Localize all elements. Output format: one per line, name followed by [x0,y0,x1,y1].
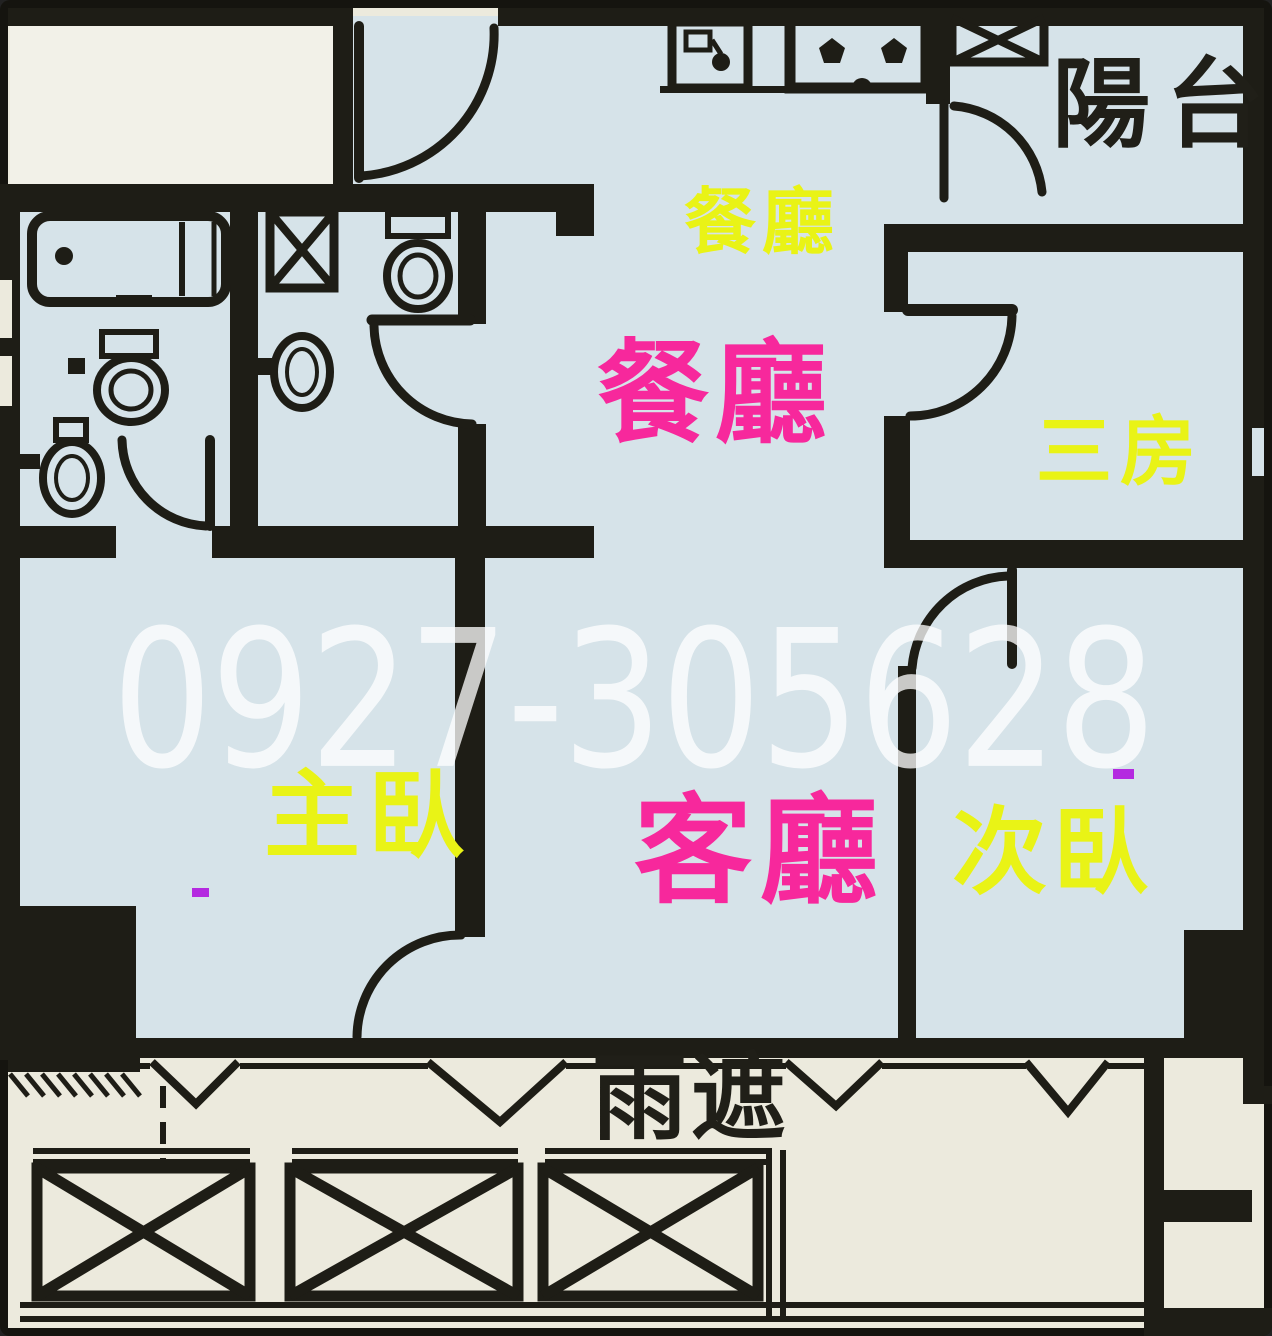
wall-room-divider [884,540,1245,568]
room-label-balcony: 陽台 [1052,56,1272,154]
purple-dash-annotation [192,888,209,897]
wall-rainshade-right [1144,1048,1164,1336]
wall-right [1243,8,1264,1100]
entry-landing [10,10,334,188]
room-label-second-bedroom: 次臥 [952,806,1154,901]
purple-dash-annotation [1113,769,1134,779]
room-label-dining: 餐廳 [597,338,833,450]
column-second-bedroom [1184,930,1245,1042]
wall-top-left [8,8,353,26]
floorplan-image: 陽台 餐廳 餐廳 三房 主臥 客廳 次臥 雨遮 0927-305628 [0,0,1272,1336]
room-label-rain-shade: 雨遮 [592,1052,790,1147]
wall-balcony-bottom [884,224,1245,252]
wall-entry-side [333,8,353,192]
wall-bath-divider [230,212,258,534]
wall-stub [556,184,594,236]
column-master-corner [10,906,136,1042]
watermark-phone-number: 0927-305628 [112,590,1154,812]
room-label-third-room: 三房 [1036,414,1204,490]
wall-bath-bottom [212,526,594,558]
room-label-kitchen: 餐廳 [684,186,840,258]
